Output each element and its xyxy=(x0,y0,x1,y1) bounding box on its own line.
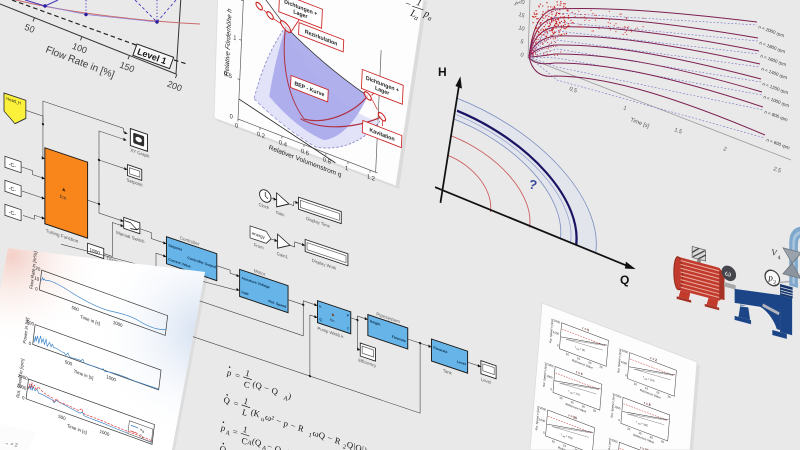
svg-text:2: 2 xyxy=(773,280,776,287)
svg-text:ω: ω xyxy=(725,267,731,279)
svg-text:4: 4 xyxy=(778,255,781,262)
svg-text:1: 1 xyxy=(308,432,312,440)
svg-text:=: = xyxy=(234,369,240,381)
svg-text:L: L xyxy=(241,406,247,418)
svg-text:=: = xyxy=(233,397,239,409)
svg-text:Q: Q xyxy=(620,273,629,287)
svg-text:H: H xyxy=(438,65,447,79)
svg-text:A: A xyxy=(261,444,266,450)
svg-text:1: 1 xyxy=(244,396,249,407)
svg-text:h: h xyxy=(319,304,321,309)
svg-text:=: = xyxy=(232,426,238,438)
svg-text:1: 1 xyxy=(245,368,250,379)
svg-text:): ) xyxy=(287,390,291,401)
svg-text:1: 1 xyxy=(243,424,248,435)
